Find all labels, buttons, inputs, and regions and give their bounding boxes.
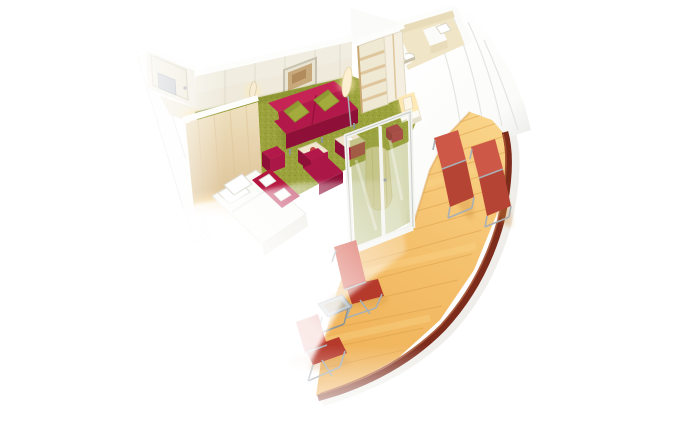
vanity-mirror — [403, 96, 413, 111]
closet — [384, 31, 406, 103]
cabin-floorplan-rendering — [0, 0, 680, 440]
bottom-fade — [250, 340, 490, 440]
scene-canvas — [0, 0, 680, 440]
